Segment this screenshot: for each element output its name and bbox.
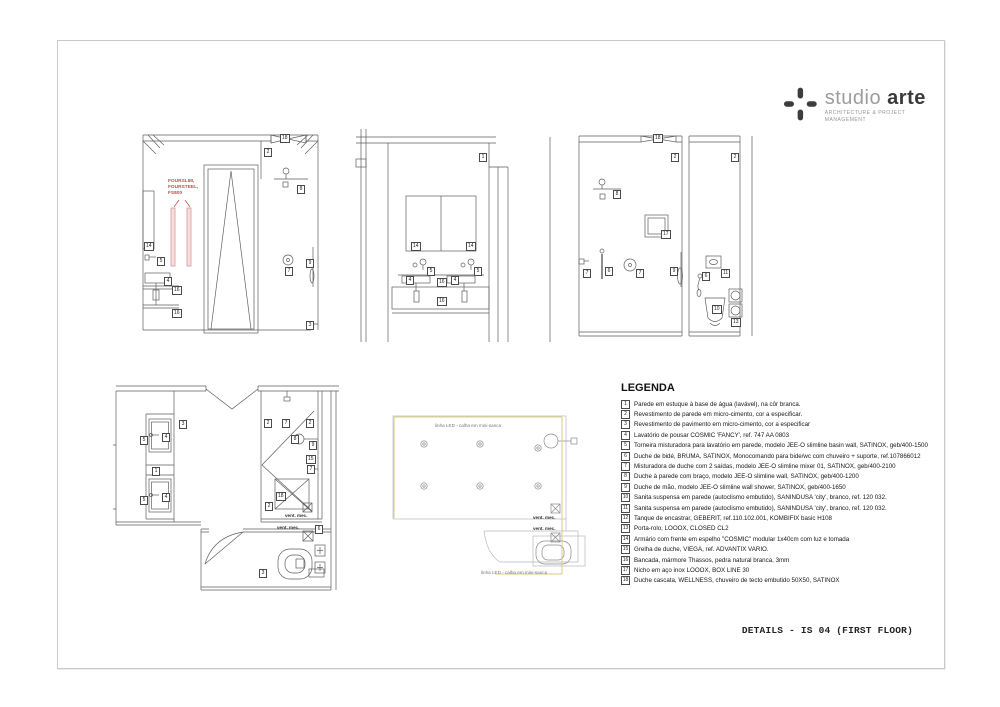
legend-item-text: Tanque de encastrar, GEBERIT, ref.110.10… <box>634 515 832 522</box>
callout: 14 <box>411 242 421 251</box>
legend-item-text: Misturadora de duche com 2 saídas, model… <box>634 463 896 470</box>
legend-item: 9Duche de mão, modelo JEE-O slimline wal… <box>621 482 943 492</box>
callout: 2 <box>671 153 679 162</box>
callout: 2 <box>731 153 739 162</box>
led-line-label: linha LED - calha em mini-sanca <box>481 570 547 575</box>
legend-item-number: 5 <box>621 441 630 450</box>
callout: 8 <box>291 435 299 444</box>
legend-item-number: 1 <box>621 400 630 409</box>
callout: 3 <box>179 420 187 429</box>
callout: 4 <box>164 277 172 286</box>
callout: 14 <box>466 242 476 251</box>
legend-item-number: 8 <box>621 472 630 481</box>
callout: 4 <box>162 433 170 442</box>
legend-item-text: Armário com frente em espelho "COSMIC" m… <box>634 536 849 543</box>
legend-item: 16Bancada, mármore Thassos, pedra natura… <box>621 555 943 565</box>
callout: 8 <box>613 190 621 199</box>
brand-subtitle: ARCHITECTURE & PROJECT MANAGEMENT <box>825 110 944 124</box>
elevation-bath-a-linework <box>122 129 322 337</box>
elevation-washbasins-linework <box>356 129 556 342</box>
vent-mec-label: vent. mec. <box>285 513 307 518</box>
callout: 9 <box>309 441 317 450</box>
page: { "logo": { "brand_light": "studio", "br… <box>0 0 1000 707</box>
legend-item: 15Grelha de duche, VIEGA, ref. ADVANTIX … <box>621 544 943 554</box>
legend-item-text: Duche de mão, modelo JEE-O slimline wall… <box>634 484 846 491</box>
legend-item-number: 6 <box>621 452 630 461</box>
elevation-shower-wc: 18 2 8 17 7 6 7 9 2 11 6 10 13 <box>571 129 761 341</box>
callout: 2 <box>264 148 272 157</box>
callout: 16 <box>437 278 447 287</box>
legend-item: 10Sanita suspensa em parede (autoclismo … <box>621 493 943 503</box>
legend-item-number: 16 <box>621 556 630 565</box>
legend-item-number: 15 <box>621 545 630 554</box>
legend-item-number: 11 <box>621 504 630 513</box>
legend-item-number: 7 <box>621 462 630 471</box>
legend-item: 1Parede em estuque à base de água (laváv… <box>621 399 943 409</box>
legend-item-text: Duche cascata, WELLNESS, chuveiro de tec… <box>634 577 840 584</box>
callout: 5 <box>140 436 148 445</box>
callout: 6 <box>702 272 710 281</box>
callout: 5 <box>140 496 148 505</box>
legend-title: LEGENDA <box>621 382 943 395</box>
legend-item-number: 10 <box>621 493 630 502</box>
legend-item-text: Grelha de duche, VIEGA, ref. ADVANTIX VA… <box>634 546 769 553</box>
legend-item-text: Duche à parede com braço, modelo JEE-O s… <box>634 473 859 480</box>
elevation-bath-a: FOURSLIM, FOURSTEEL, FS800 2 18 14 5 4 1… <box>122 129 322 337</box>
legend-item: 6Duche de bidé, BRUMA, SATINOX, Monocoma… <box>621 451 943 461</box>
callout: 6 <box>315 525 323 534</box>
callout: 16 <box>172 286 182 295</box>
legend-item-number: 3 <box>621 420 630 429</box>
vent-mec-label: vent. mec. <box>533 526 555 531</box>
studio-arte-logo: studio arte ARCHITECTURE & PROJECT MANAG… <box>784 87 944 124</box>
brand-bold: arte <box>887 87 926 109</box>
callout: 2 <box>306 419 314 428</box>
legend-item-number: 14 <box>621 535 630 544</box>
legend-item-number: 18 <box>621 576 630 585</box>
ceiling-plan-linework <box>373 404 601 594</box>
callout: 9 <box>306 259 314 268</box>
callout: 7 <box>285 267 293 276</box>
callout: 5 <box>157 257 165 266</box>
legend-item-text: Parede em estuque à base de água (laváve… <box>634 401 800 408</box>
callout: 18 <box>280 134 290 143</box>
legend-item-text: Sanita suspensa em parede (autoclismo em… <box>634 505 887 512</box>
legend-item: 2Revestimento de parede em micro-cimento… <box>621 409 943 419</box>
legend-item-text: Duche de bidé, BRUMA, SATINOX, Monocoman… <box>634 453 921 460</box>
vent-mec-label: vent. mec. <box>277 525 299 530</box>
legend-item: 17Nicho em aço inox LOOOX, BOX LINE 30 <box>621 565 943 575</box>
legend-item: 11Sanita suspensa em parede (autoclismo … <box>621 503 943 513</box>
legend-item-text: Porta-rolo, LOOOX, CLOSED CL2 <box>634 525 729 532</box>
legend-item: 18Duche cascata, WELLNESS, chuveiro de t… <box>621 576 943 586</box>
callout: 2 <box>265 502 273 511</box>
legend-item-number: 4 <box>621 431 630 440</box>
callout: 4 <box>406 276 414 285</box>
legend-item-number: 9 <box>621 483 630 492</box>
callout: 13 <box>731 318 741 327</box>
legend-item: 3Revestimento de pavimento em micro-cime… <box>621 420 943 430</box>
legend-item-number: 13 <box>621 524 630 533</box>
legend-item: 8Duche à parede com braço, modelo JEE-O … <box>621 472 943 482</box>
callout: 18 <box>653 134 663 143</box>
legend-item: 14Armário com frente em espelho "COSMIC"… <box>621 534 943 544</box>
callout: 5 <box>427 267 435 276</box>
elevation-washbasins: 1 14 14 5 5 4 16 4 16 <box>356 129 556 342</box>
legend-item-text: Torneira misturadora para lavatório em p… <box>634 442 928 449</box>
led-line-label: linha LED - calha em mini-sanca <box>435 423 501 428</box>
floor-plan: vent. mec. vent. mec. 4 5 1 4 5 3 2 7 2 … <box>113 379 351 597</box>
vent-mec-label: vent. mec. <box>533 515 555 520</box>
legend-item-text: Lavatório de pousar COSMIC 'FANCY', ref.… <box>634 432 789 439</box>
cross-logo-icon <box>784 87 817 121</box>
callout: 15 <box>306 455 316 464</box>
legend-item: 4Lavatório de pousar COSMIC 'FANCY', ref… <box>621 430 943 440</box>
callout: 1 <box>152 467 160 476</box>
legend-item: 5Torneira misturadora para lavatório em … <box>621 441 943 451</box>
floor-plan-linework <box>113 379 351 597</box>
callout: 11 <box>721 269 730 278</box>
callout: 1 <box>479 153 487 162</box>
callout: 7 <box>282 419 290 428</box>
callout: 16 <box>437 297 447 306</box>
callout: 14 <box>144 242 154 251</box>
callout: 10 <box>712 305 722 314</box>
callout: 4 <box>451 276 459 285</box>
callout: 4 <box>162 493 170 502</box>
ceiling-plan: linha LED - calha em mini-sanca linha LE… <box>373 404 601 594</box>
callout: 9 <box>670 267 678 276</box>
legend-item-text: Nicho em aço inox LOOOX, BOX LINE 30 <box>634 567 749 574</box>
brand-text: studio arte <box>825 87 944 109</box>
callout: 7 <box>636 269 644 278</box>
drawing-sheet: studio arte ARCHITECTURE & PROJECT MANAG… <box>57 40 945 669</box>
callout: 18 <box>276 492 286 501</box>
legend-item-text: Bancada, mármore Thassos, pedra natural … <box>634 557 789 564</box>
legend-item-text: Revestimento de parede em micro-cimento,… <box>634 411 802 418</box>
legend-item-number: 2 <box>621 410 630 419</box>
callout: 6 <box>605 267 613 276</box>
callout: 2 <box>264 419 272 428</box>
sheet-title: DETAILS - IS 04 (FIRST FLOOR) <box>718 625 913 637</box>
legend-item-text: Sanita suspensa em parede (autoclismo em… <box>634 494 887 501</box>
brand-light: studio <box>825 87 881 109</box>
legend: LEGENDA 1Parede em estuque à base de águ… <box>621 382 943 586</box>
legend-item: 7Misturadora de duche com 2 saídas, mode… <box>621 461 943 471</box>
callout: 5 <box>474 267 482 276</box>
legend-item: 13Porta-rolo, LOOOX, CLOSED CL2 <box>621 524 943 534</box>
callout: 16 <box>172 309 182 318</box>
legend-item-number: 17 <box>621 566 630 575</box>
callout: 8 <box>297 185 305 194</box>
fourslim-annotation: FOURSLIM, FOURSTEEL, FS800 <box>168 179 198 197</box>
callout: 3 <box>306 321 314 330</box>
callout: 17 <box>661 230 671 239</box>
legend-item-text: Revestimento de pavimento em micro-cimen… <box>634 421 810 428</box>
callout: 7 <box>307 465 315 474</box>
legend-item-number: 12 <box>621 514 630 523</box>
callout: 3 <box>259 569 267 578</box>
callout: 7 <box>583 269 591 278</box>
legend-item: 12Tanque de encastrar, GEBERIT, ref.110.… <box>621 513 943 523</box>
